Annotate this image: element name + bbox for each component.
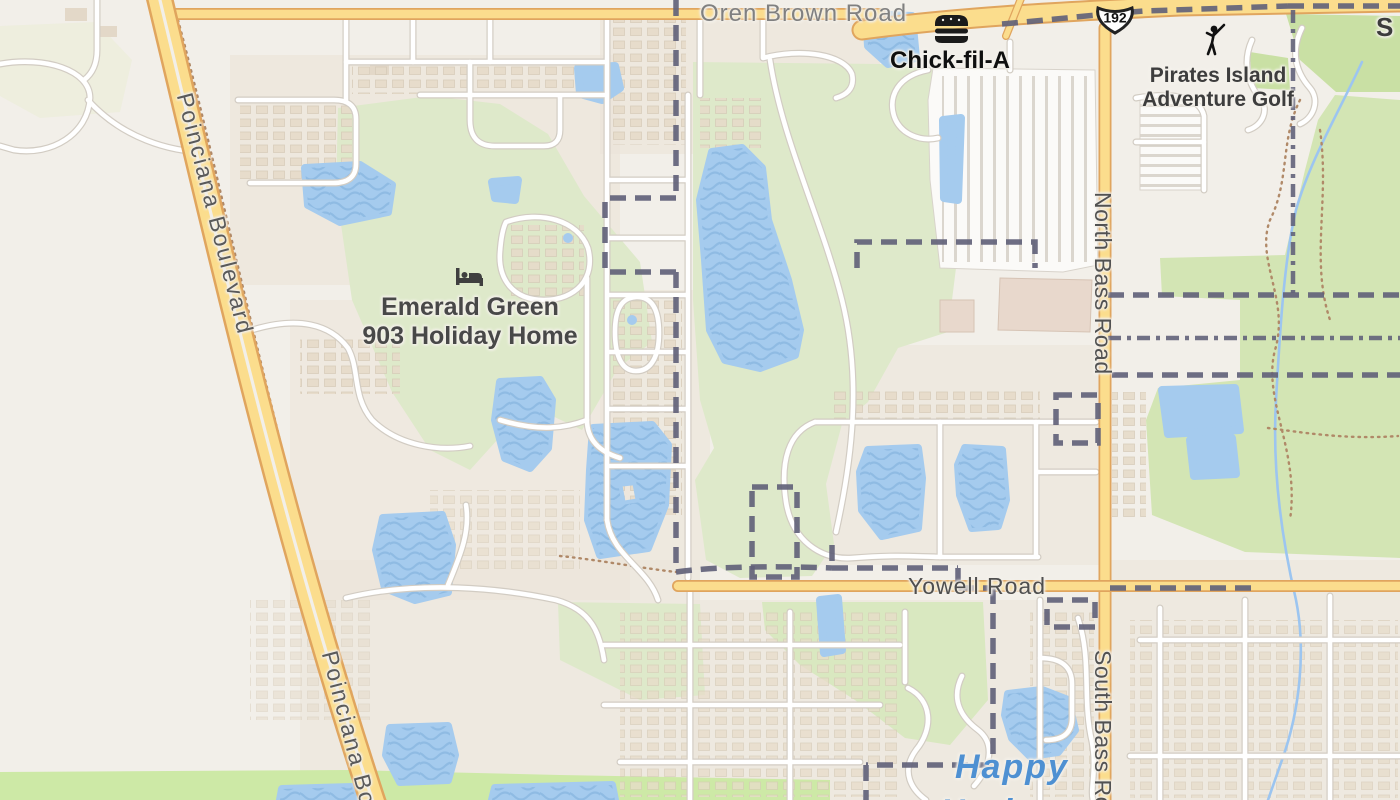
map-canvas[interactable]: 192 Oren Brown Road Poinciana Boulevard … (0, 0, 1400, 800)
route-number: 192 (1103, 10, 1127, 26)
map-tiles: 192 (0, 0, 1400, 800)
fast-food-icon[interactable] (935, 15, 968, 43)
